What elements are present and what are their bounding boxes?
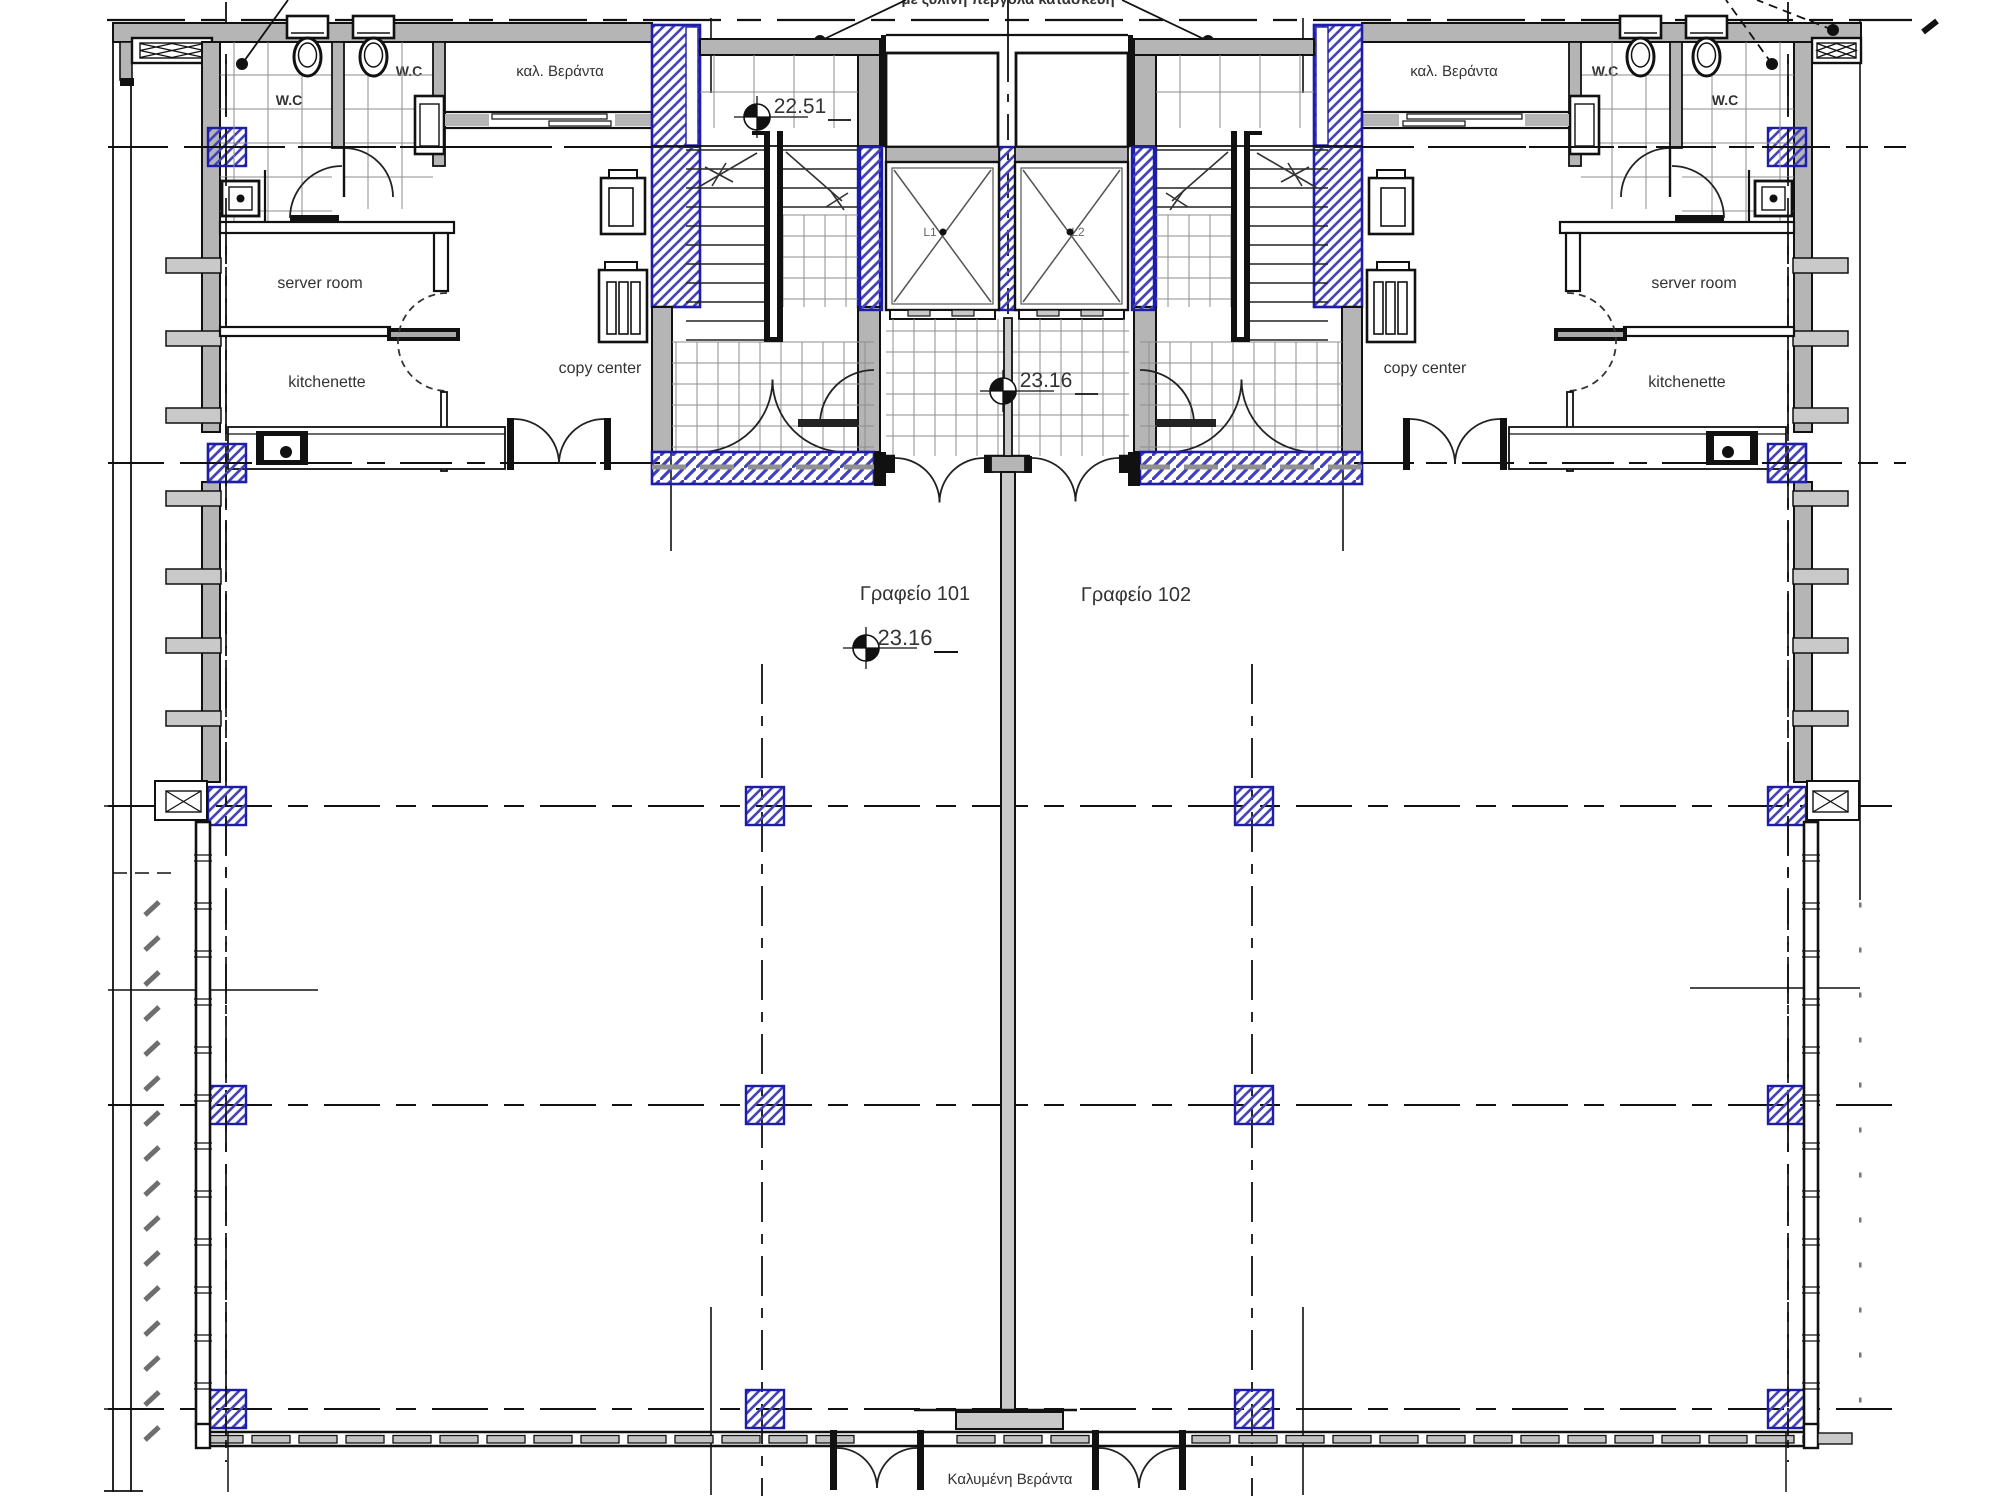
svg-text:με ξυλινη περγολα κατασκευη: με ξυλινη περγολα κατασκευη bbox=[901, 0, 1114, 8]
svg-text:καλ. Βεράντα: καλ. Βεράντα bbox=[516, 63, 604, 80]
svg-text:copy center: copy center bbox=[559, 360, 642, 377]
svg-text:L1: L1 bbox=[923, 225, 937, 239]
svg-text:23.16: 23.16 bbox=[877, 625, 932, 650]
svg-text:server room: server room bbox=[277, 275, 362, 292]
svg-text:Καλυμένη Βεράντα: Καλυμένη Βεράντα bbox=[948, 1471, 1073, 1488]
svg-text:W.C: W.C bbox=[396, 63, 422, 79]
svg-text:καλ. Βεράντα: καλ. Βεράντα bbox=[1410, 63, 1498, 80]
svg-text:W.C: W.C bbox=[1592, 63, 1618, 79]
svg-text:copy center: copy center bbox=[1384, 360, 1467, 377]
svg-text:23.16: 23.16 bbox=[1020, 369, 1073, 392]
svg-text:kitchenette: kitchenette bbox=[288, 374, 365, 391]
svg-text:Γραφείο 102: Γραφείο 102 bbox=[1081, 584, 1191, 606]
svg-text:22.51: 22.51 bbox=[774, 95, 827, 118]
svg-text:kitchenette: kitchenette bbox=[1648, 374, 1725, 391]
svg-text:W.C: W.C bbox=[276, 92, 302, 108]
svg-text:server room: server room bbox=[1651, 275, 1736, 292]
svg-text:Γραφείο 101: Γραφείο 101 bbox=[860, 583, 970, 605]
svg-text:W.C: W.C bbox=[1712, 92, 1738, 108]
